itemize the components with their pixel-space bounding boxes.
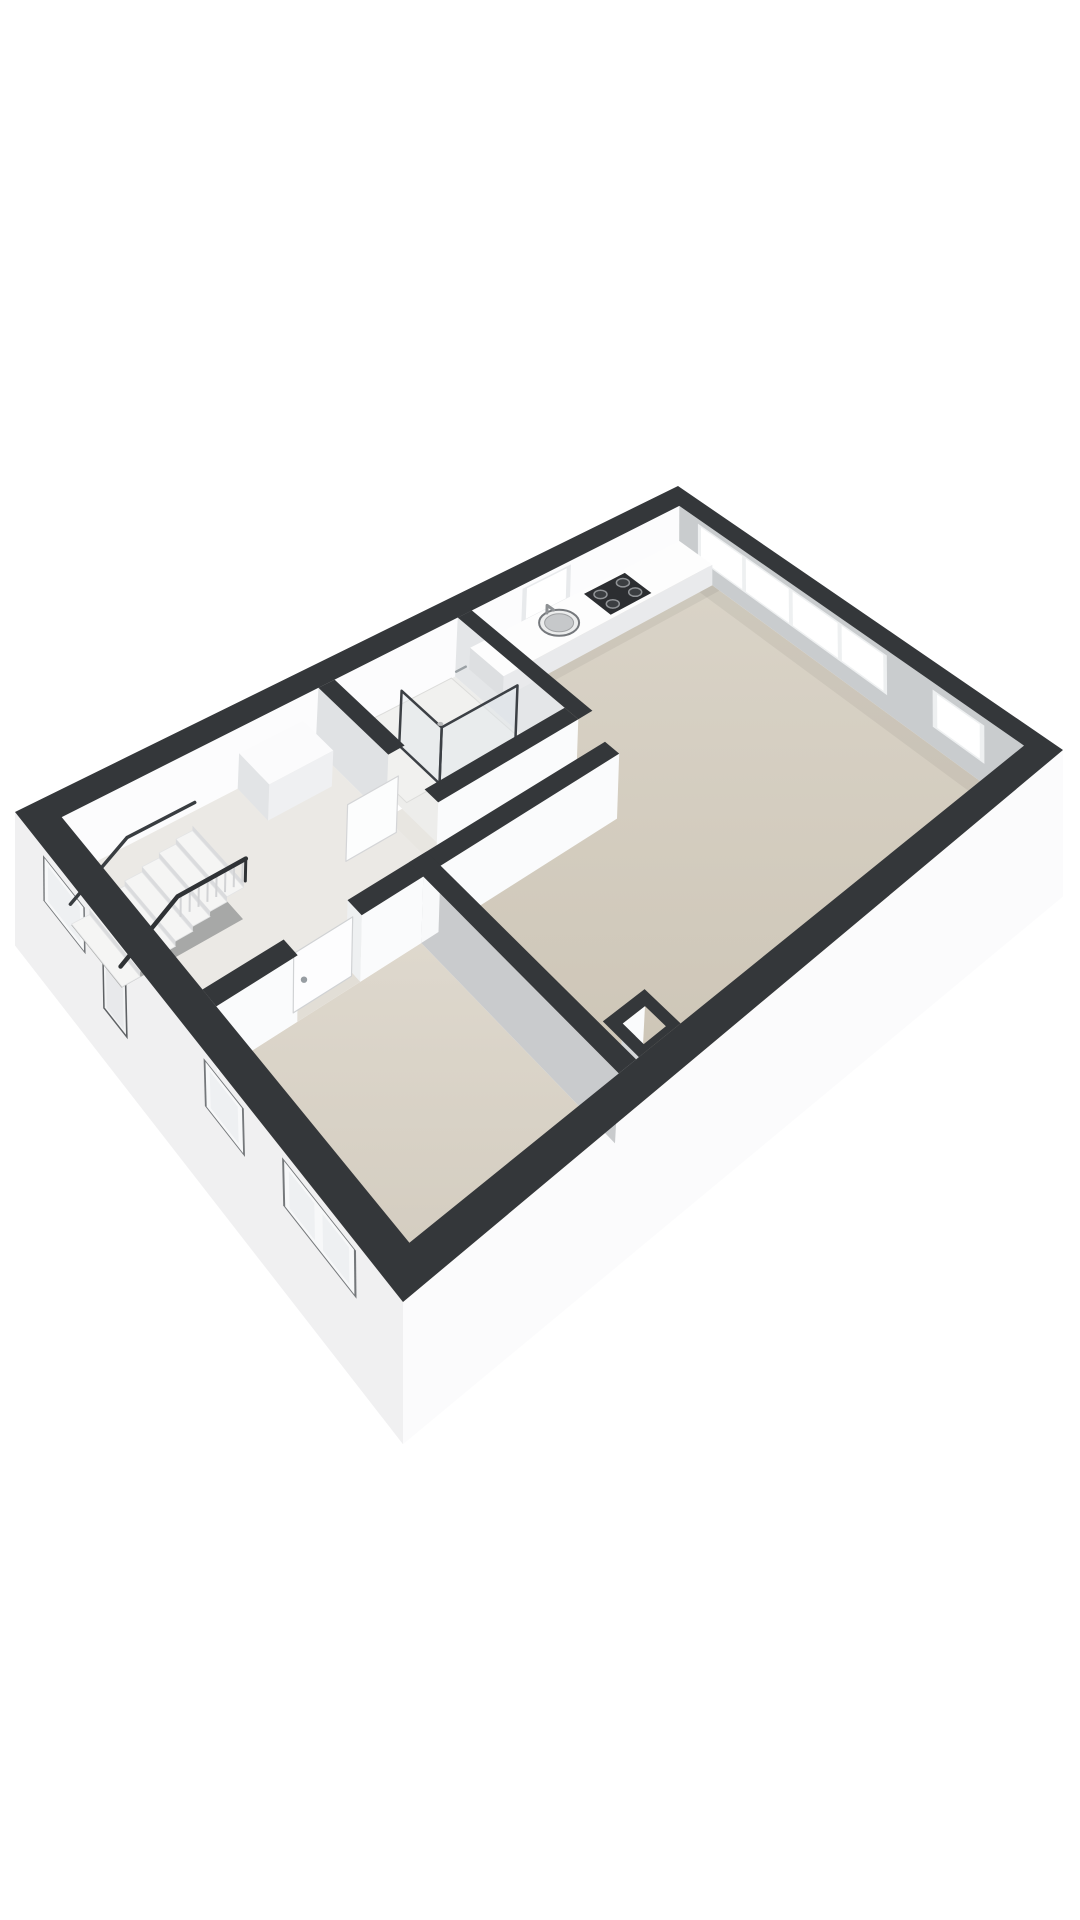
hob-burner [629,588,642,596]
floor-plan-svg [0,0,1080,1920]
kitchen-sink-basin [545,614,574,632]
shower-drain [437,722,443,726]
hob-burner [616,579,629,587]
hob-burner [594,590,607,598]
bedroom-door-handle [301,977,307,983]
floor-plan-3d [0,0,1080,1920]
stair-railing-post [245,859,246,881]
hob-burner [606,600,619,608]
